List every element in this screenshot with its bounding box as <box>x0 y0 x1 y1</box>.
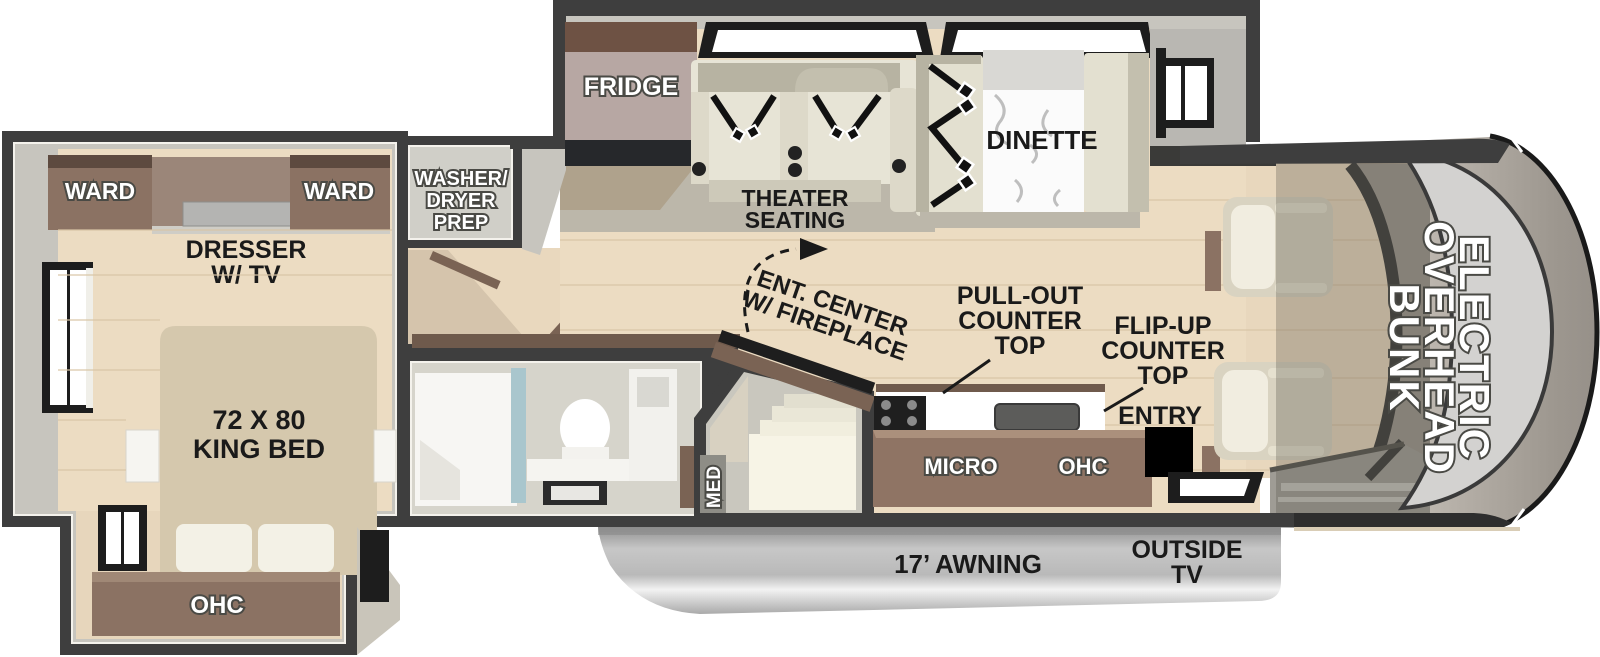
svg-text:SEATING: SEATING <box>745 207 846 233</box>
svg-text:17’ AWNING: 17’ AWNING <box>894 549 1042 579</box>
svg-text:KING BED: KING BED <box>193 434 325 464</box>
svg-text:DINETTE: DINETTE <box>986 125 1097 155</box>
svg-text:WARD: WARD <box>304 178 374 204</box>
svg-text:COUNTER: COUNTER <box>1101 337 1225 365</box>
svg-text:TOP: TOP <box>995 332 1046 360</box>
svg-text:FRIDGE: FRIDGE <box>584 73 678 101</box>
svg-text:FLIP-UP: FLIP-UP <box>1114 312 1211 340</box>
svg-text:PULL-OUT: PULL-OUT <box>957 282 1083 310</box>
svg-text:DRYER: DRYER <box>426 190 496 212</box>
svg-text:MED: MED <box>704 466 725 508</box>
svg-text:BUNK: BUNK <box>1381 283 1428 412</box>
svg-text:ENTRY: ENTRY <box>1118 402 1202 430</box>
svg-text:WARD: WARD <box>65 178 135 204</box>
svg-text:TV: TV <box>1171 561 1203 589</box>
svg-text:OHC: OHC <box>190 592 243 619</box>
svg-text:OHC: OHC <box>1059 454 1108 479</box>
svg-text:MICRO: MICRO <box>924 454 997 479</box>
svg-text:COUNTER: COUNTER <box>958 307 1082 335</box>
svg-text:PREP: PREP <box>434 212 488 234</box>
svg-text:TOP: TOP <box>1138 362 1189 390</box>
svg-text:72 X 80: 72 X 80 <box>212 405 305 435</box>
svg-text:DRESSER: DRESSER <box>186 236 307 264</box>
svg-text:OUTSIDE: OUTSIDE <box>1131 536 1242 564</box>
svg-text:WASHER/: WASHER/ <box>414 168 508 190</box>
